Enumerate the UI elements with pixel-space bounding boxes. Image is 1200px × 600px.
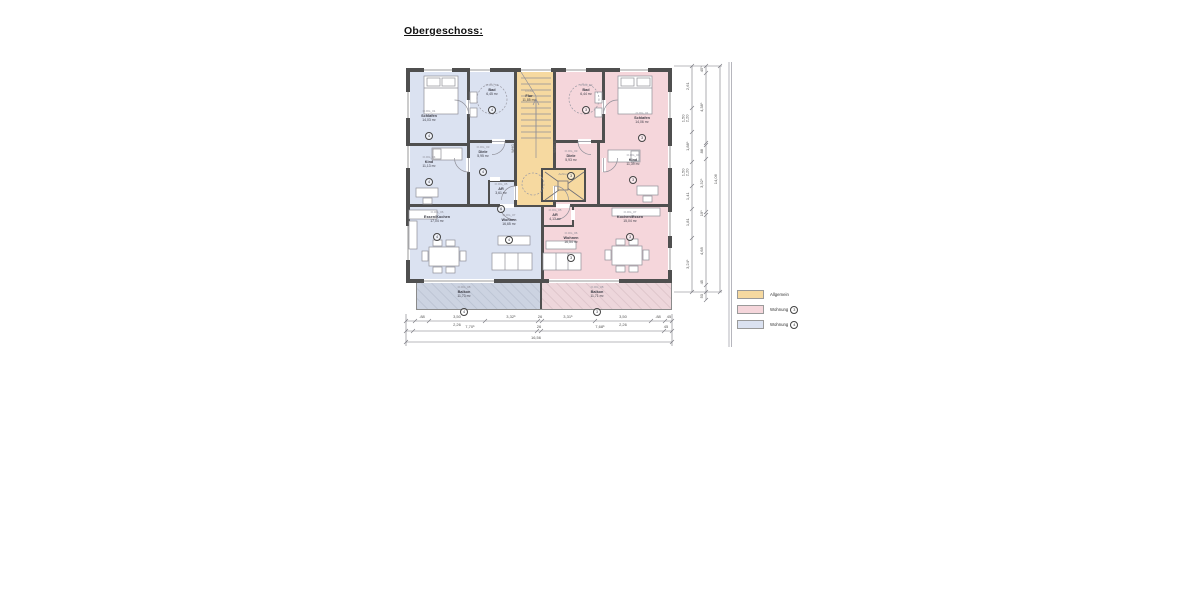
dim-label: 26 xyxy=(530,315,550,319)
room-label-w3-kochen: O.OG_07 Kochen/Essen 15,04 m² 3 xyxy=(612,211,648,244)
dim-label: 26 xyxy=(529,325,549,329)
legend-item-allgemein: Allgemein xyxy=(737,290,789,299)
window xyxy=(521,68,551,72)
window xyxy=(406,146,410,168)
dim-label: 50 xyxy=(700,286,704,306)
apartment-number-badge: 4 xyxy=(505,236,513,244)
room-label-w3-wohnen: O.OG_06 Wohnen 16,54 m² 3 xyxy=(556,232,586,265)
dim-label: 4,38⁵ xyxy=(700,97,704,117)
apartment-number-badge: 3 xyxy=(582,106,590,114)
window xyxy=(620,68,648,72)
legend-swatch-allgemein xyxy=(737,290,764,299)
room-label-w4-balkon: O.OG_08 Balkon 11,73 m² 4 xyxy=(447,286,481,319)
apartment-number-badge: 4 xyxy=(497,205,505,213)
apartment-number-badge: 4 xyxy=(479,168,487,176)
legend-label: Wohnung xyxy=(770,322,788,327)
dim-label: 3,32⁵ xyxy=(700,173,704,193)
room-label-w3-kind: O.OG_04 Kind 11,39 m² 3 xyxy=(618,154,648,187)
apartment-number-badge: 4 xyxy=(488,106,496,114)
door-opening xyxy=(602,100,606,114)
dim-label: 3,502,26 xyxy=(613,315,633,327)
dim-label-total-width: 16,56 xyxy=(521,336,551,340)
room-label-w3-bad: O.OG_02 Bad 6,44 m² 3 xyxy=(571,84,601,117)
room-label-w3-balkon: O.OG_08 Balkon 11,71 m² 3 xyxy=(580,286,614,319)
dim-label: 1,41 xyxy=(686,186,690,206)
legend-swatch-wohnung4 xyxy=(737,320,764,329)
dim-label-total-height: 14,06 xyxy=(714,169,718,189)
room-label-w3-diele: O.OG_03 Diele 5,93 m² 3 xyxy=(558,150,584,183)
window xyxy=(406,226,410,260)
room-label-w4-diele: O.OG_03 Diele 5,95 m² 4 xyxy=(470,146,496,179)
dim-label: 3,31⁵ xyxy=(558,315,578,319)
dim-label: 45 xyxy=(659,315,679,319)
dim-label: 45 xyxy=(656,325,676,329)
dim-label: 2,61 xyxy=(686,76,690,96)
dim-label: 88 xyxy=(700,141,704,161)
apartment-number-badge: 3 xyxy=(593,308,601,316)
apartment-number-badge: 4 xyxy=(433,233,441,241)
dim-label: 1,81 xyxy=(686,212,690,232)
apartment-number-badge: 3 xyxy=(790,306,798,314)
legend-item-wohnung3: Wohnung3 xyxy=(737,305,798,314)
page-title: Obergeschoss: xyxy=(404,25,483,37)
door-opening xyxy=(466,100,470,114)
window xyxy=(470,68,490,72)
dim-label: 3,32⁵ xyxy=(501,315,521,319)
apartment-number-badge: 3 xyxy=(626,233,634,241)
dim-label: 19⁵ xyxy=(700,203,704,223)
dim-label: 3,24⁵ xyxy=(686,254,690,274)
floor-plan-page: Obergeschoss: xyxy=(0,0,1200,600)
window xyxy=(406,92,410,118)
room-label-w4-wohnen: O.OG_07 Wohnen 16,65 m² 4 xyxy=(494,214,524,247)
legend-label: Wohnung xyxy=(770,307,788,312)
door-opening xyxy=(571,210,575,220)
room-label-flur: O.OG Flur 11,85 m² xyxy=(517,90,541,103)
dim-label: 1,88⁵ xyxy=(686,136,690,156)
whg4-wall-label: WHG 4 xyxy=(511,137,515,157)
apartment-number-badge: 3 xyxy=(629,176,637,184)
door-opening xyxy=(492,139,505,144)
room-label-w4-schlafen: O.OG_01 Schlafen 14,03 m² 4 xyxy=(414,110,444,143)
legend-swatch-wohnung3 xyxy=(737,305,764,314)
whg3-wall-label: WHG 3 xyxy=(553,137,557,157)
legend-item-wohnung4: Wohnung4 xyxy=(737,320,798,329)
room-label-aufzug: Aufzug xyxy=(549,173,577,177)
legend-label: Allgemein xyxy=(770,292,789,297)
section-line xyxy=(729,62,732,347)
window xyxy=(668,92,672,118)
dim-label: 1,502,20 xyxy=(682,108,691,128)
apartment-number-badge: 4 xyxy=(425,178,433,186)
door-opening xyxy=(578,139,591,144)
dim-label: 7,68⁵ xyxy=(590,325,610,329)
room-label-w4-essen: O.OG_06 Essen/Kochen 17,04 m² 4 xyxy=(420,211,454,244)
window xyxy=(566,68,586,72)
apartment-number-badge: 3 xyxy=(638,134,646,142)
dim-label: 7,70⁵ xyxy=(460,325,480,329)
dim-label: 1,502,20 xyxy=(682,162,691,182)
room-label-w3-schlafen: O.OG_01 Schlafen 14,06 m² 3 xyxy=(625,112,659,145)
apartment-number-badge: 4 xyxy=(425,132,433,140)
dim-label: 45⁵ xyxy=(700,59,704,79)
dim-label: .88 xyxy=(412,315,432,319)
door-opening xyxy=(553,186,557,200)
door-opening xyxy=(514,186,518,200)
window xyxy=(668,146,672,168)
apartment-number-badge: 3 xyxy=(567,254,575,262)
room-label-w3-ar: O.OG_05 AR 4,13 m² xyxy=(543,209,567,222)
room-label-w4-kind: O.OG_04 Kind 11,13 m² 4 xyxy=(414,156,444,189)
dim-label: 4,68 xyxy=(700,241,704,261)
room-label-w4-ar: O.OG_05 AR 3,61 m² 4 xyxy=(490,183,512,216)
door-opening xyxy=(602,158,606,172)
balcony-divider xyxy=(540,283,542,309)
room-label-w4-bad: O.OG_02 Bad 6,45 m² 4 xyxy=(477,84,507,117)
window xyxy=(668,212,672,236)
window xyxy=(668,248,672,270)
apartment-number-badge: 4 xyxy=(790,321,798,329)
window xyxy=(424,68,452,72)
